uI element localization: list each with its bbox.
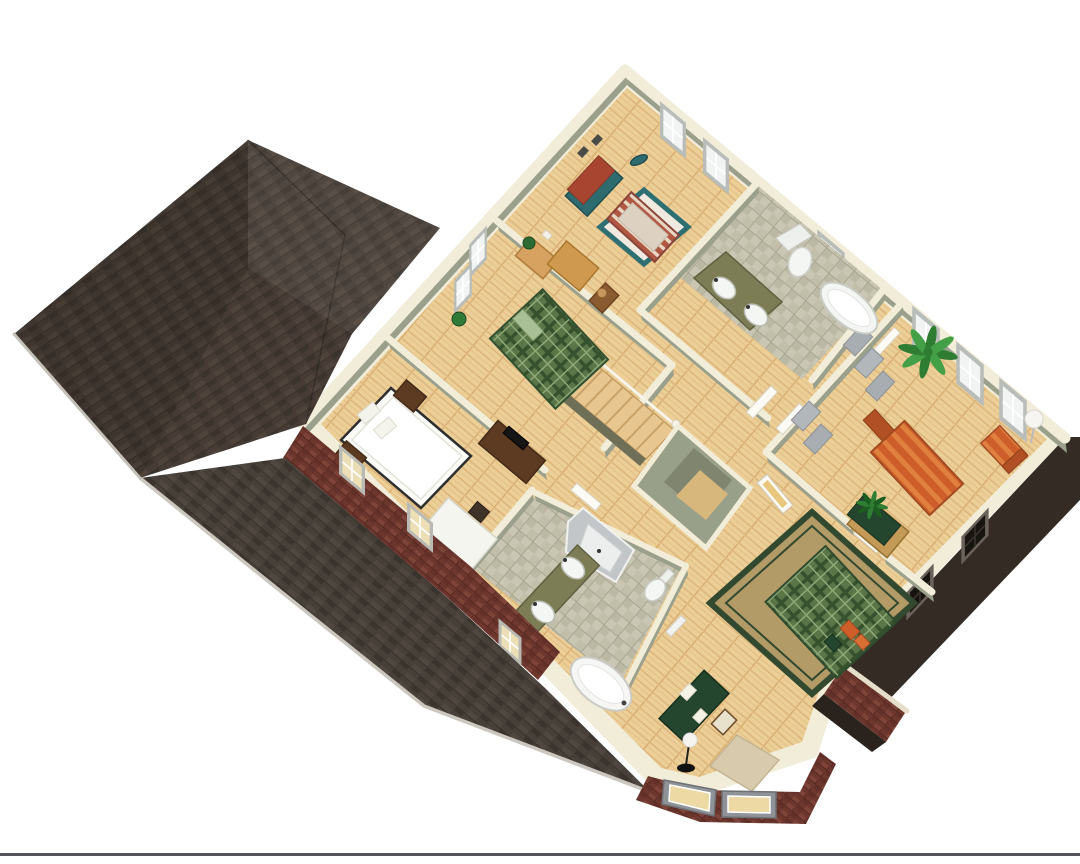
shower-drain: [597, 549, 601, 553]
teddy-bear: [598, 289, 607, 298]
black-lamp-base: [677, 764, 695, 773]
plant-center: [923, 347, 932, 356]
dresser-plant: [523, 237, 535, 249]
bath1-faucet-1: [714, 278, 718, 282]
floor-plan-scene: [0, 0, 1080, 864]
bedroom2-floor-plant: [452, 312, 466, 326]
floor-plan-3d-render: [0, 0, 1080, 864]
bay-window-2-glass: [728, 796, 770, 813]
black-lamp-shade: [683, 733, 697, 747]
ensuite-faucet-1: [563, 558, 567, 562]
ensuite-faucet-2: [533, 602, 537, 606]
bottom-rule: [0, 853, 1080, 856]
tub-faucet: [622, 701, 627, 706]
sphere-floor-lamp: [1025, 410, 1043, 428]
plant-center: [869, 502, 874, 507]
bath1-faucet-2: [746, 305, 750, 309]
